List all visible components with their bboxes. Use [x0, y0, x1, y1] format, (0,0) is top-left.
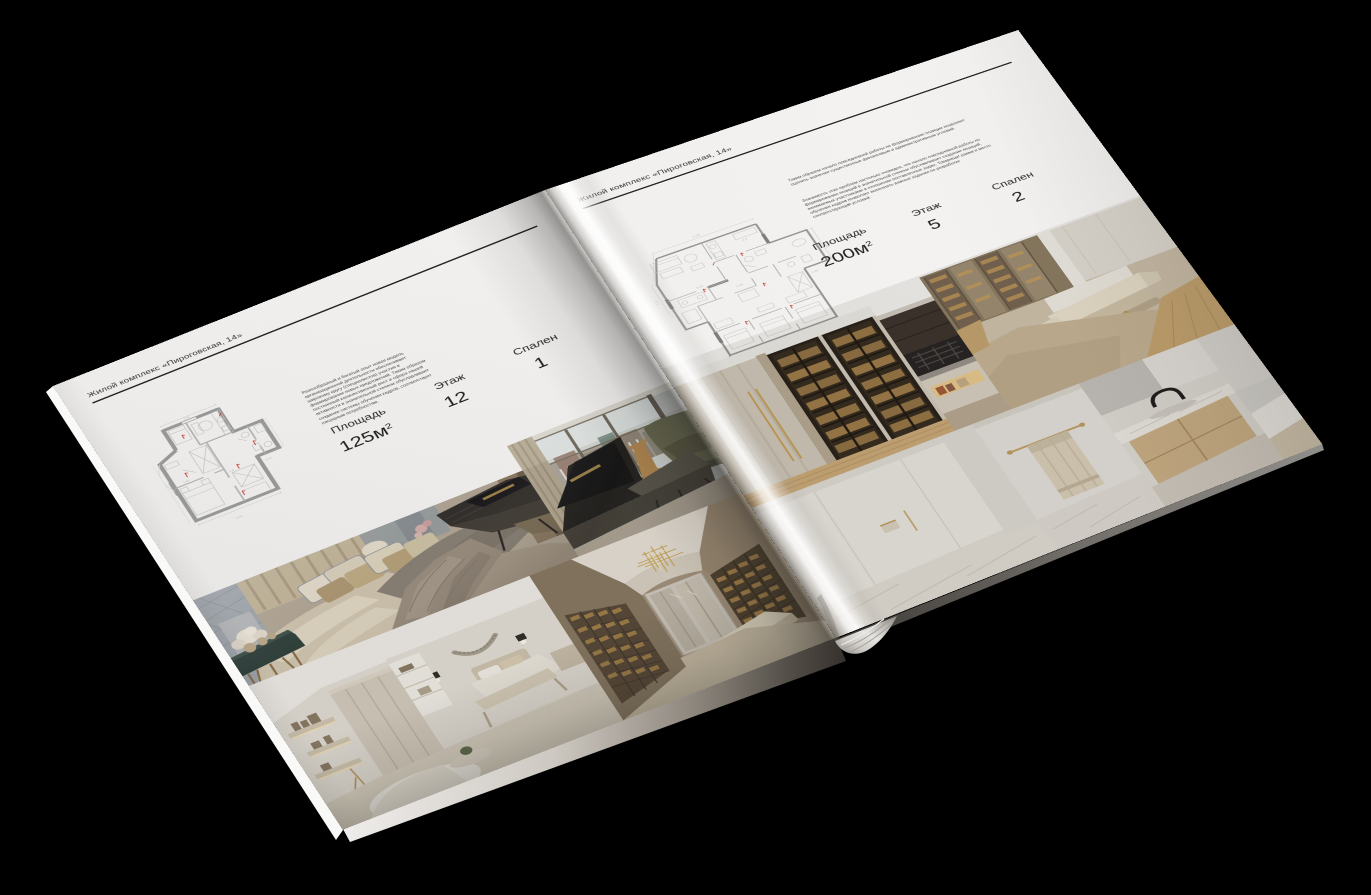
- svg-text:4,15: 4,15: [654, 300, 660, 306]
- svg-text:2,2: 2,2: [742, 237, 749, 241]
- svg-text:2,6: 2,6: [229, 468, 236, 473]
- svg-text:3,25: 3,25: [695, 284, 704, 289]
- svg-text:2,10: 2,10: [265, 456, 273, 461]
- svg-text:5,64: 5,64: [235, 514, 243, 519]
- svg-text:2,40: 2,40: [736, 283, 745, 288]
